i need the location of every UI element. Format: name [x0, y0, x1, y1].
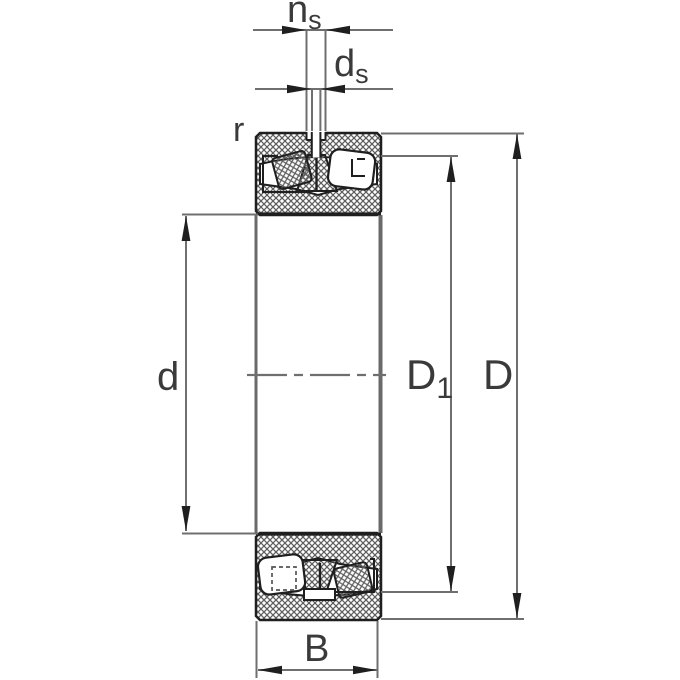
ds-extension-lines [312, 89, 320, 131]
dim-label-B: B [304, 628, 329, 670]
bearing-top-section [256, 131, 381, 215]
D-arrow-up [513, 134, 522, 159]
drawing-canvas: ns ds r d D1 D B [0, 0, 680, 680]
dim-label-d1: D1 [406, 351, 453, 405]
ns-extension-lines [307, 30, 326, 131]
bearing-bottom-section [256, 533, 381, 620]
D-arrow-down [513, 593, 522, 618]
lubrication-hole [312, 131, 321, 158]
d-arrow-up [182, 216, 191, 241]
ds-arrow-left [287, 85, 312, 93]
dim-label-ns: ns [287, 0, 322, 35]
dim-label-r: r [233, 111, 244, 149]
d-extension-lines [182, 215, 258, 534]
B-arrow-left [258, 666, 282, 674]
cage-guide-ring [304, 589, 335, 600]
d1-arrow-up [447, 157, 456, 182]
B-arrow-right [353, 666, 377, 674]
dim-label-ds: ds [334, 43, 369, 89]
bottom-left-roller [257, 553, 306, 595]
d-arrow-down [182, 506, 191, 531]
dim-label-d: d [157, 355, 179, 399]
dim-label-D: D [483, 351, 513, 398]
ns-arrow-right [326, 26, 350, 34]
bearing-dimension-drawing: ns ds r d D1 D B [0, 0, 680, 680]
d1-arrow-down [447, 566, 456, 591]
